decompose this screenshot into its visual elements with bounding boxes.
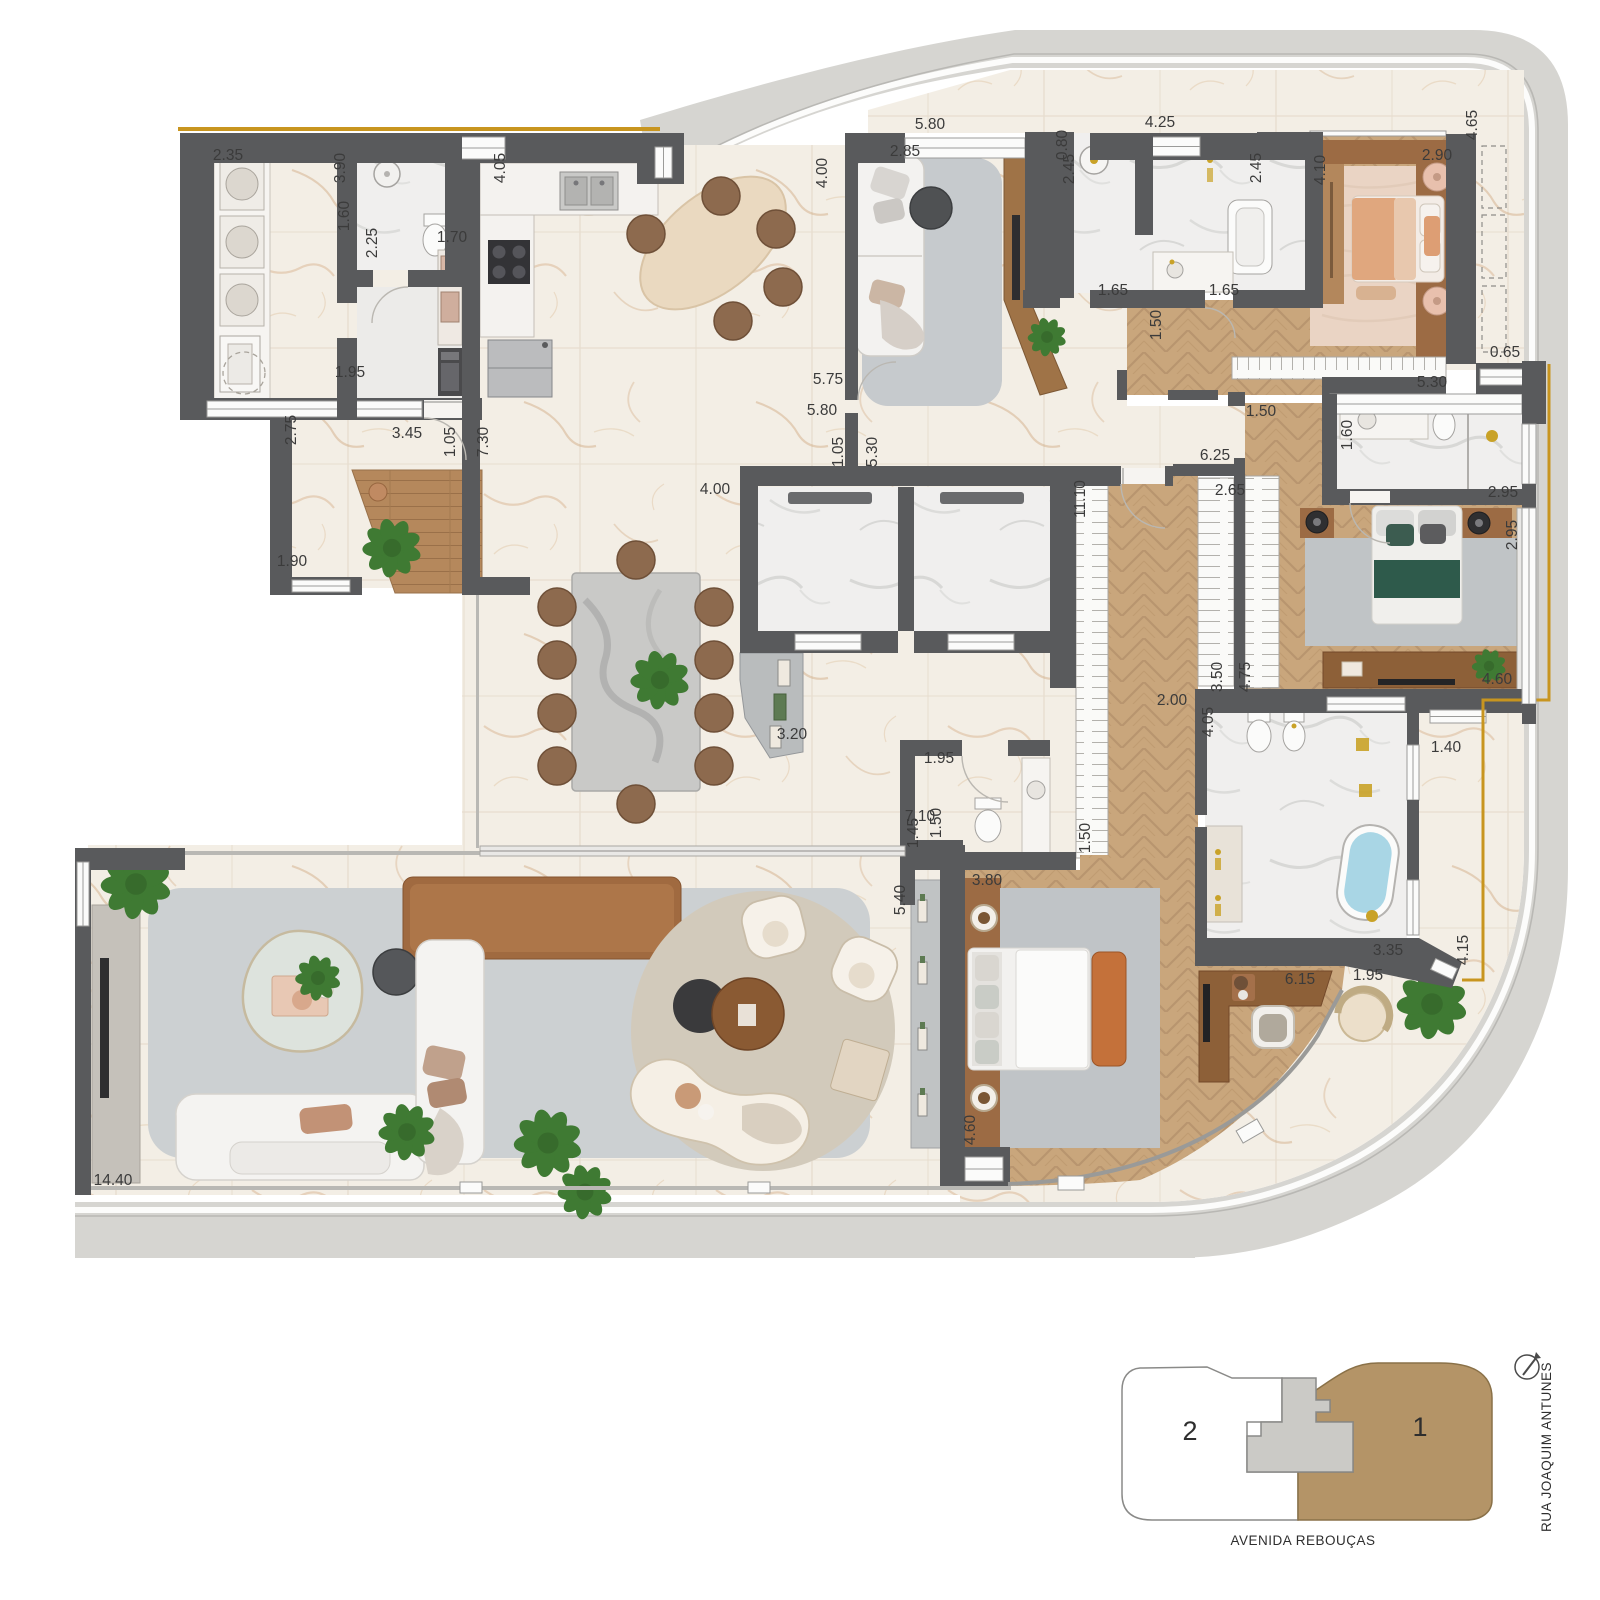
- svg-text:4.25: 4.25: [1145, 114, 1175, 131]
- svg-text:5.40: 5.40: [892, 885, 909, 916]
- svg-text:4.05: 4.05: [492, 153, 509, 183]
- svg-text:3.80: 3.80: [972, 872, 1003, 889]
- svg-text:2.35: 2.35: [213, 147, 243, 164]
- svg-text:1.05: 1.05: [830, 437, 847, 467]
- svg-text:5.30: 5.30: [864, 437, 881, 468]
- svg-text:3.50: 3.50: [1209, 662, 1226, 693]
- svg-text:4.65: 4.65: [1464, 110, 1481, 140]
- svg-text:4.00: 4.00: [814, 158, 831, 189]
- svg-text:4.75: 4.75: [1237, 662, 1254, 692]
- svg-text:5.80: 5.80: [915, 116, 946, 133]
- svg-text:3.90: 3.90: [332, 153, 349, 184]
- svg-text:7.30: 7.30: [475, 427, 492, 458]
- svg-text:6.25: 6.25: [1200, 447, 1230, 464]
- svg-text:1.60: 1.60: [336, 201, 353, 232]
- svg-text:3.35: 3.35: [1373, 942, 1403, 959]
- svg-text:4.15: 4.15: [1455, 935, 1472, 965]
- svg-text:4.60: 4.60: [1482, 671, 1513, 688]
- svg-text:2.85: 2.85: [890, 143, 920, 160]
- svg-text:2.75: 2.75: [283, 415, 300, 445]
- svg-text:14.40: 14.40: [94, 1172, 133, 1189]
- svg-text:1.65: 1.65: [1209, 282, 1239, 299]
- svg-text:2.45: 2.45: [1248, 153, 1265, 183]
- svg-text:1.05: 1.05: [442, 427, 459, 457]
- svg-text:1.50: 1.50: [1148, 310, 1165, 341]
- svg-text:2.00: 2.00: [1157, 692, 1188, 709]
- svg-text:3.20: 3.20: [777, 726, 808, 743]
- svg-text:4.10: 4.10: [1312, 155, 1329, 186]
- svg-text:2.95: 2.95: [1488, 484, 1518, 501]
- svg-text:1.50: 1.50: [1077, 823, 1094, 854]
- svg-text:1.65: 1.65: [1098, 282, 1128, 299]
- svg-text:4.05: 4.05: [1200, 707, 1217, 737]
- svg-text:RUA JOAQUIM ANTUNES: RUA JOAQUIM ANTUNES: [1539, 1362, 1554, 1532]
- svg-text:1.95: 1.95: [335, 364, 365, 381]
- svg-text:4.00: 4.00: [700, 481, 731, 498]
- svg-text:1: 1: [1412, 1412, 1427, 1442]
- svg-text:2.65: 2.65: [1215, 482, 1245, 499]
- svg-text:5.80: 5.80: [807, 402, 838, 419]
- svg-text:6.15: 6.15: [1285, 971, 1315, 988]
- svg-text:1.50: 1.50: [1246, 403, 1277, 420]
- svg-text:0.65: 0.65: [1490, 344, 1520, 361]
- svg-text:1.95: 1.95: [924, 750, 954, 767]
- svg-text:5.75: 5.75: [813, 371, 843, 388]
- svg-text:2: 2: [1182, 1416, 1197, 1446]
- svg-text:4.60: 4.60: [962, 1115, 979, 1146]
- svg-text:2.90: 2.90: [1422, 147, 1453, 164]
- svg-text:7.10: 7.10: [905, 808, 936, 825]
- svg-text:11.10: 11.10: [1072, 480, 1089, 518]
- svg-text:2.45: 2.45: [1061, 154, 1078, 184]
- svg-text:2.25: 2.25: [364, 228, 381, 258]
- svg-text:AVENIDA REBOUÇAS: AVENIDA REBOUÇAS: [1230, 1533, 1375, 1548]
- svg-text:3.45: 3.45: [392, 425, 422, 442]
- svg-text:1.90: 1.90: [277, 553, 308, 570]
- svg-text:1.40: 1.40: [1431, 739, 1462, 756]
- svg-text:1.60: 1.60: [1339, 420, 1356, 451]
- svg-text:1.95: 1.95: [1353, 967, 1383, 984]
- svg-text:1.70: 1.70: [437, 229, 468, 246]
- svg-text:2.95: 2.95: [1504, 520, 1521, 550]
- svg-text:5.30: 5.30: [1417, 374, 1448, 391]
